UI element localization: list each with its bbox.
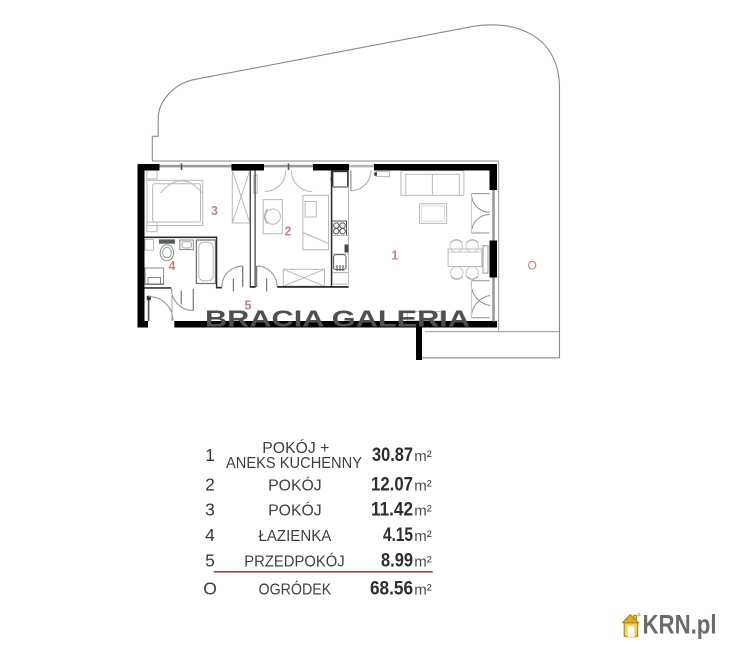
svg-text:BRACIA GALERIA: BRACIA GALERIA xyxy=(205,306,470,332)
svg-text:m²: m² xyxy=(414,502,432,519)
svg-text:2: 2 xyxy=(205,475,215,495)
svg-text:m²: m² xyxy=(414,553,432,570)
svg-text:1: 1 xyxy=(205,445,215,465)
svg-text:POKÓJ: POKÓJ xyxy=(268,500,322,519)
svg-text:O: O xyxy=(203,578,217,598)
svg-text:4: 4 xyxy=(169,259,176,273)
svg-text:OGRÓDEK: OGRÓDEK xyxy=(259,579,332,598)
svg-text:3: 3 xyxy=(205,499,215,519)
svg-text:5: 5 xyxy=(205,550,215,570)
svg-text:30.87: 30.87 xyxy=(372,445,413,466)
svg-text:12.07: 12.07 xyxy=(371,475,413,496)
svg-text:m²: m² xyxy=(414,448,432,465)
svg-text:11.42: 11.42 xyxy=(371,499,413,520)
svg-text:4.15: 4.15 xyxy=(383,525,413,546)
svg-text:2: 2 xyxy=(284,225,291,239)
svg-text:POKÓJ: POKÓJ xyxy=(268,476,322,495)
svg-text:m²: m² xyxy=(414,528,432,545)
svg-text:3: 3 xyxy=(211,204,218,218)
svg-text:KRN.pl: KRN.pl xyxy=(643,610,717,640)
svg-text:8.99: 8.99 xyxy=(381,550,413,571)
svg-text:4: 4 xyxy=(205,525,215,545)
svg-text:PRZEDPOKÓJ: PRZEDPOKÓJ xyxy=(244,551,344,570)
svg-text:O: O xyxy=(528,258,537,272)
svg-text:m²: m² xyxy=(414,581,432,598)
svg-text:ANEKS KUCHENNY: ANEKS KUCHENNY xyxy=(226,455,362,472)
svg-text:m²: m² xyxy=(414,478,432,495)
svg-text:ŁAZIENKA: ŁAZIENKA xyxy=(259,528,332,545)
svg-text:68.56: 68.56 xyxy=(370,578,413,599)
svg-text:1: 1 xyxy=(391,249,398,263)
